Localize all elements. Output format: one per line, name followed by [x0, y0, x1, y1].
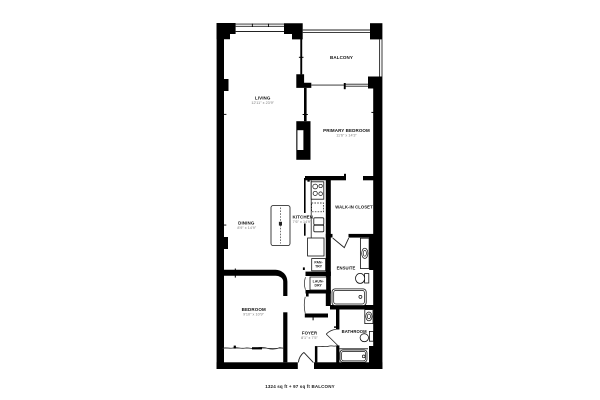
- svg-text:8'9" x 14'9": 8'9" x 14'9": [237, 226, 256, 230]
- svg-text:FOYER: FOYER: [302, 330, 318, 335]
- svg-text:PRIMARY BEDROOM: PRIMARY BEDROOM: [323, 128, 370, 133]
- svg-text:DINING: DINING: [238, 221, 255, 226]
- svg-text:KITCHEN: KITCHEN: [292, 215, 313, 220]
- svg-text:BALCONY: BALCONY: [330, 55, 353, 60]
- svg-text:7'6" x 14'9": 7'6" x 14'9": [293, 220, 312, 224]
- svg-text:11'6" x 14'3": 11'6" x 14'3": [336, 134, 357, 138]
- svg-text:9'10" x 10'9": 9'10" x 10'9": [243, 312, 265, 316]
- svg-text:8'1" x 7'5": 8'1" x 7'5": [301, 336, 318, 340]
- svg-text:1324 sq ft + 97 sq ft BALCONY: 1324 sq ft + 97 sq ft BALCONY: [265, 384, 335, 389]
- svg-text:DRY: DRY: [315, 283, 323, 287]
- svg-text:12'11" x 23'9": 12'11" x 23'9": [251, 101, 274, 105]
- svg-text:ENSUITE: ENSUITE: [337, 266, 356, 271]
- svg-text:TRY: TRY: [315, 265, 323, 269]
- svg-text:BEDROOM: BEDROOM: [242, 307, 266, 312]
- svg-text:WALK-IN CLOSET: WALK-IN CLOSET: [335, 205, 373, 210]
- svg-text:LIVING: LIVING: [255, 95, 271, 100]
- svg-text:BATHROOM: BATHROOM: [342, 329, 368, 334]
